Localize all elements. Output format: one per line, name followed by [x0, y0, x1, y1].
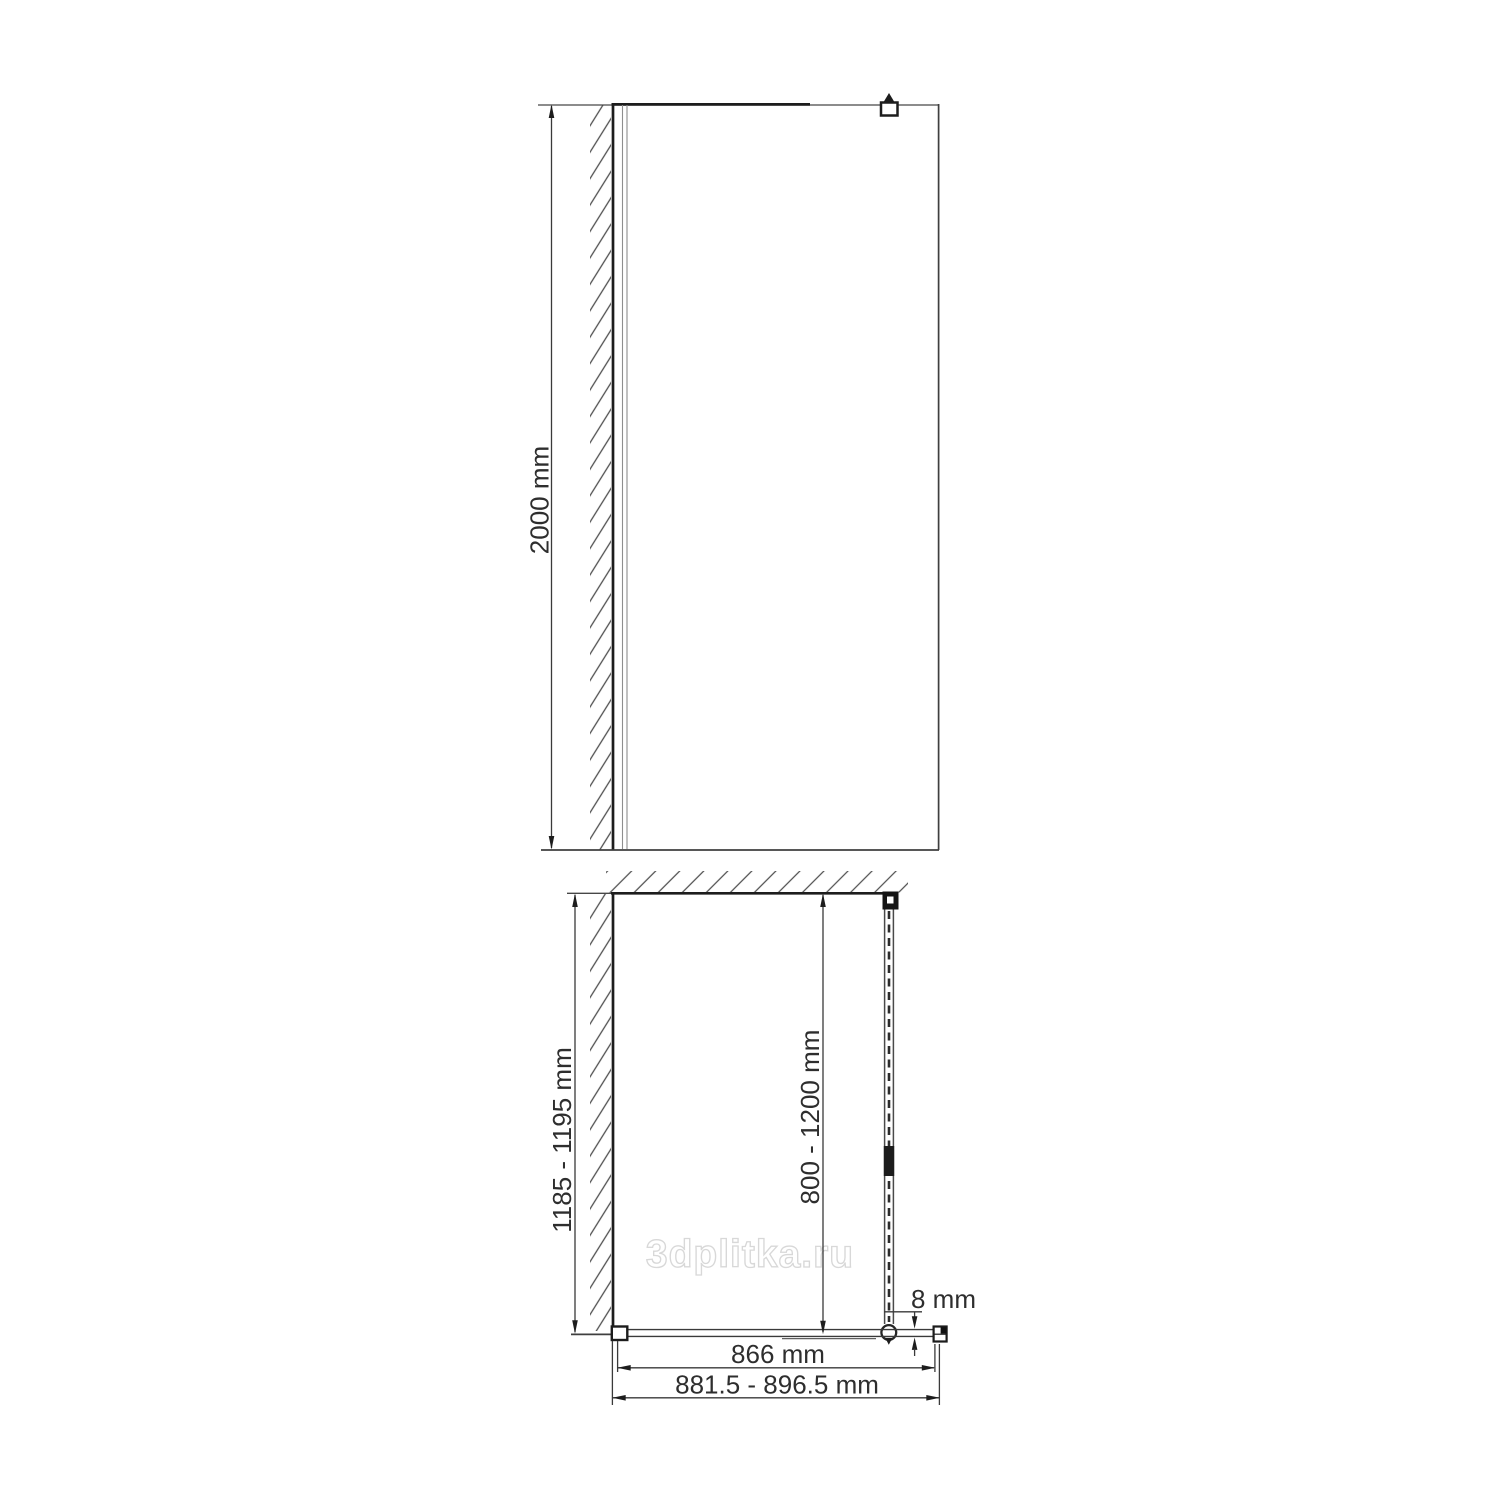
technical-drawing: 3dplitka.ru 2000 mm	[0, 0, 1500, 1500]
support-bar-clamp-foot	[885, 1338, 892, 1345]
glass-width-arrow-right	[922, 1365, 936, 1371]
glass-width-arrow-left	[617, 1365, 631, 1371]
front-wall-hatch	[590, 105, 611, 850]
plan-back-wall	[567, 871, 908, 893]
glass-width-dimension: 866 mm	[617, 1339, 935, 1371]
thickness-arrow-down	[912, 1316, 918, 1328]
height-dimension: 2000 mm	[525, 105, 555, 850]
glass-wall-profile	[612, 1327, 628, 1341]
glass-width-label: 866 mm	[731, 1339, 825, 1369]
bar-dim-label: 800 - 1200 mm	[795, 1030, 825, 1205]
glass-end-cap-notch	[941, 1327, 947, 1333]
height-dim-arrow-bottom	[549, 836, 555, 850]
top-plan-view: 1185 - 1195 mm 800 - 1200 mm 8 mm	[547, 871, 976, 1405]
back-wall-hatch	[606, 871, 908, 893]
thickness-dim-label: 8 mm	[911, 1284, 976, 1314]
clamp-body	[881, 103, 898, 116]
height-dim-label: 2000 mm	[525, 446, 555, 554]
depth-dim-arrow-top	[572, 894, 578, 908]
plan-left-wall	[571, 893, 613, 1335]
depth-dimension: 1185 - 1195 mm	[547, 894, 578, 1334]
depth-dim-label: 1185 - 1195 mm	[547, 1047, 577, 1232]
thickness-arrow-up	[912, 1338, 918, 1350]
support-bar-telescopic-section	[884, 1146, 894, 1176]
left-wall-hatch	[590, 894, 611, 1331]
bar-dim-arrow-top	[820, 894, 826, 908]
overall-width-arrow-right	[926, 1395, 940, 1401]
support-bar-clamp-front	[881, 93, 898, 116]
glass-thickness-dimension: 8 mm	[884, 1284, 976, 1356]
height-dim-arrow-top	[549, 105, 555, 119]
overall-width-label: 881.5 - 896.5 mm	[675, 1370, 879, 1400]
support-bar-plan	[881, 892, 898, 1345]
support-bar-wall-bracket-hole	[887, 897, 894, 904]
width-dimensions: 866 mm 881.5 - 896.5 mm	[612, 1339, 940, 1405]
overall-width-arrow-left	[612, 1395, 626, 1401]
depth-dim-arrow-bottom	[572, 1320, 578, 1334]
front-wall-section	[590, 104, 613, 850]
drawing-canvas: 3dplitka.ru 2000 mm	[0, 0, 1500, 1500]
support-bar-glass-clamp	[881, 1325, 896, 1340]
bar-dim-arrow-bottom	[820, 1321, 826, 1335]
overall-width-dimension: 881.5 - 896.5 mm	[612, 1370, 940, 1401]
front-elevation-view: 2000 mm	[525, 93, 940, 850]
clamp-knob	[883, 93, 894, 103]
